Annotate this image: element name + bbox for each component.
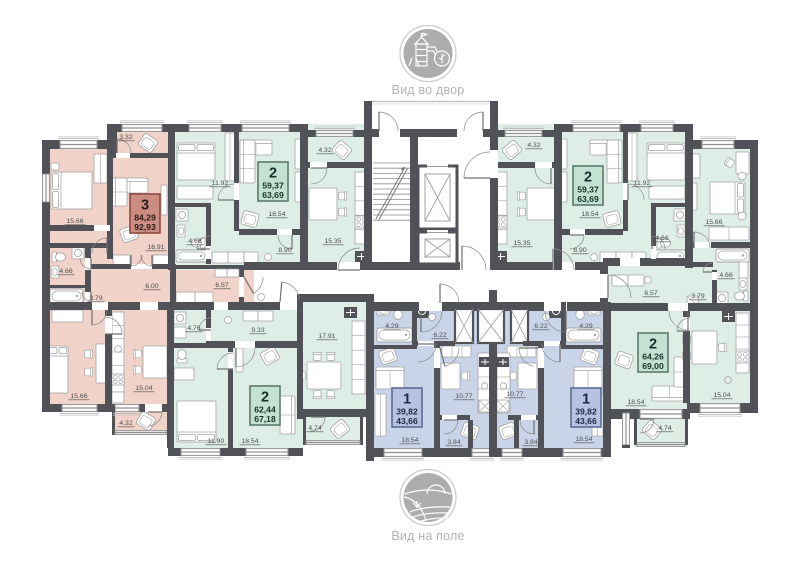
svg-text:10.77: 10.77 bbox=[455, 393, 472, 400]
svg-text:4.74: 4.74 bbox=[308, 425, 321, 432]
svg-text:4.32: 4.32 bbox=[119, 420, 132, 427]
svg-text:2: 2 bbox=[261, 390, 269, 406]
svg-text:59,37: 59,37 bbox=[577, 185, 599, 195]
svg-text:Вид во двор: Вид во двор bbox=[392, 83, 465, 97]
svg-text:18.54: 18.54 bbox=[268, 211, 285, 218]
svg-text:59,37: 59,37 bbox=[262, 181, 284, 191]
svg-text:9.33: 9.33 bbox=[251, 327, 264, 334]
svg-text:4.66: 4.66 bbox=[719, 272, 732, 279]
svg-text:39,82: 39,82 bbox=[575, 407, 597, 417]
svg-text:2: 2 bbox=[649, 337, 657, 353]
svg-text:18.54: 18.54 bbox=[241, 438, 258, 445]
svg-text:4.76: 4.76 bbox=[187, 325, 200, 332]
svg-text:3.84: 3.84 bbox=[524, 439, 537, 446]
svg-text:63,69: 63,69 bbox=[262, 190, 284, 200]
svg-text:4.32: 4.32 bbox=[318, 147, 331, 154]
svg-text:43,66: 43,66 bbox=[575, 416, 597, 426]
svg-text:3.32: 3.32 bbox=[119, 134, 132, 141]
svg-text:69,00: 69,00 bbox=[642, 361, 664, 371]
svg-text:6.22: 6.22 bbox=[433, 332, 446, 339]
svg-text:43,66: 43,66 bbox=[396, 416, 418, 426]
svg-text:39,82: 39,82 bbox=[396, 407, 418, 417]
svg-text:92,93: 92,93 bbox=[134, 222, 156, 232]
svg-text:6.57: 6.57 bbox=[644, 290, 657, 297]
svg-text:63,69: 63,69 bbox=[577, 194, 599, 204]
svg-text:4.66: 4.66 bbox=[188, 238, 201, 245]
svg-text:4.74: 4.74 bbox=[658, 425, 671, 432]
svg-text:1: 1 bbox=[582, 392, 590, 408]
svg-text:16.91: 16.91 bbox=[147, 244, 164, 251]
svg-text:18.54: 18.54 bbox=[401, 437, 418, 444]
svg-text:6.00: 6.00 bbox=[145, 283, 158, 290]
svg-text:18.54: 18.54 bbox=[581, 211, 598, 218]
svg-text:2: 2 bbox=[269, 166, 277, 182]
svg-text:3.79: 3.79 bbox=[691, 293, 704, 300]
svg-text:15.04: 15.04 bbox=[713, 392, 730, 399]
svg-text:Вид на поле: Вид на поле bbox=[391, 529, 464, 543]
svg-text:6.22: 6.22 bbox=[534, 323, 547, 330]
svg-text:17.91: 17.91 bbox=[318, 333, 335, 340]
svg-text:3.79: 3.79 bbox=[89, 295, 102, 302]
svg-text:1: 1 bbox=[403, 392, 411, 408]
svg-text:67,18: 67,18 bbox=[254, 414, 276, 424]
svg-text:64,26: 64,26 bbox=[642, 352, 664, 362]
svg-text:2: 2 bbox=[584, 170, 592, 186]
svg-text:6.57: 6.57 bbox=[215, 282, 228, 289]
svg-text:4.32: 4.32 bbox=[527, 142, 540, 149]
svg-text:11.92: 11.92 bbox=[634, 180, 651, 187]
svg-text:62,44: 62,44 bbox=[254, 405, 276, 415]
svg-text:4.66: 4.66 bbox=[59, 268, 72, 275]
svg-text:18.54: 18.54 bbox=[575, 436, 592, 443]
svg-text:15.35: 15.35 bbox=[324, 238, 341, 245]
svg-text:84,29: 84,29 bbox=[134, 213, 156, 223]
svg-text:10.77: 10.77 bbox=[506, 391, 523, 398]
svg-text:4.29: 4.29 bbox=[385, 323, 398, 330]
svg-text:3: 3 bbox=[141, 198, 149, 214]
svg-text:11.92: 11.92 bbox=[212, 180, 229, 187]
svg-text:15.66: 15.66 bbox=[66, 218, 83, 225]
svg-text:3.84: 3.84 bbox=[447, 439, 460, 446]
svg-text:15.04: 15.04 bbox=[135, 385, 152, 392]
svg-text:15.35: 15.35 bbox=[513, 240, 530, 247]
svg-text:4.29: 4.29 bbox=[579, 323, 592, 330]
svg-text:18.54: 18.54 bbox=[627, 399, 644, 406]
svg-text:4.66: 4.66 bbox=[655, 235, 668, 242]
svg-text:8.90: 8.90 bbox=[573, 247, 586, 254]
svg-text:15.66: 15.66 bbox=[705, 219, 722, 226]
svg-text:11.90: 11.90 bbox=[208, 438, 225, 445]
svg-text:15.66: 15.66 bbox=[70, 393, 87, 400]
svg-text:8.90: 8.90 bbox=[278, 247, 291, 254]
